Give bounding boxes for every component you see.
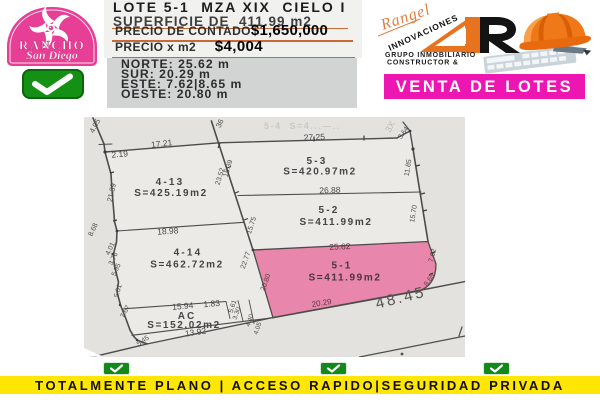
- svg-text:27.25: 27.25: [303, 131, 325, 142]
- svg-text:S=411.99m2: S=411.99m2: [300, 217, 373, 228]
- svg-text:S=462.72m2: S=462.72m2: [150, 260, 224, 271]
- svg-text:GRUPO INMOBILIARIO: GRUPO INMOBILIARIO: [385, 52, 476, 59]
- svg-text:S=411.99m2: S=411.99m2: [309, 273, 382, 284]
- svg-text:S=420.97m2: S=420.97m2: [283, 167, 357, 178]
- svg-text:San Diego: San Diego: [26, 48, 78, 62]
- svg-text:5-1: 5-1: [331, 261, 352, 272]
- svg-text:5-2: 5-2: [318, 205, 339, 216]
- svg-text:S=425.19m2: S=425.19m2: [134, 188, 208, 199]
- svg-text:1.83: 1.83: [203, 298, 221, 309]
- svg-text:4-13: 4-13: [156, 177, 185, 188]
- svg-text:25.62: 25.62: [329, 241, 351, 252]
- svg-text:18.98: 18.98: [157, 225, 179, 236]
- svg-text:4-14: 4-14: [174, 248, 203, 259]
- svg-text:2.19: 2.19: [111, 148, 129, 159]
- svg-text:5-4 S=4...—..: 5-4 S=4...—..: [264, 121, 341, 131]
- svg-text:CONSTRUCTOR &: CONSTRUCTOR &: [387, 60, 459, 67]
- svg-text:26.88: 26.88: [319, 185, 341, 196]
- svg-text:S=152.02m2: S=152.02m2: [147, 320, 221, 331]
- svg-text:5-3: 5-3: [306, 156, 327, 167]
